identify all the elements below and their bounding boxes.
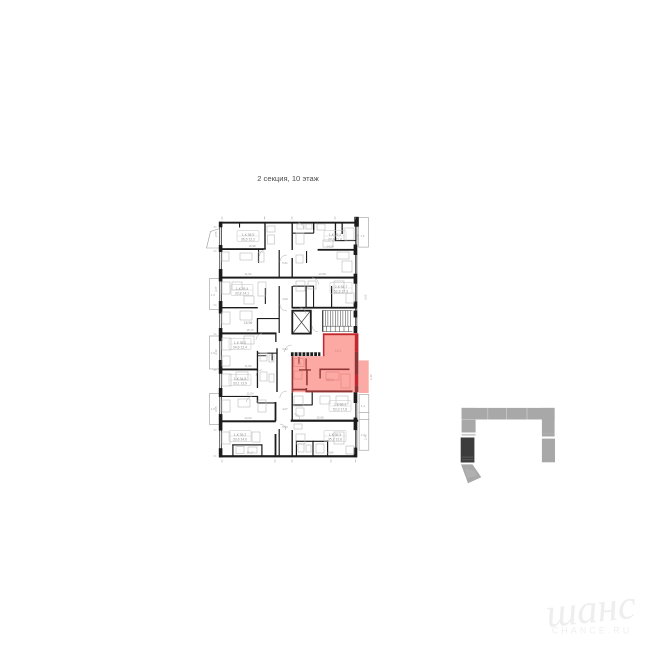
svg-text:2,43: 2,43 xyxy=(369,374,373,380)
svg-text:3,62: 3,62 xyxy=(364,294,368,300)
svg-text:3,9: 3,9 xyxy=(297,362,301,366)
svg-text:53,3 17,8: 53,3 17,8 xyxy=(333,408,347,412)
svg-text:14,94: 14,94 xyxy=(245,416,252,420)
svg-text:2-К 54,7: 2-К 54,7 xyxy=(335,285,348,289)
svg-text:11,62: 11,62 xyxy=(245,272,252,276)
svg-text:15,96: 15,96 xyxy=(244,321,253,325)
svg-text:52,9 17,3: 52,9 17,3 xyxy=(334,290,348,294)
svg-text:34,6 12,4: 34,6 12,4 xyxy=(233,346,247,350)
svg-text:1-К 35,2: 1-К 35,2 xyxy=(234,433,247,437)
svg-text:27,9 11,0: 27,9 11,0 xyxy=(328,238,342,242)
svg-text:11,80: 11,80 xyxy=(245,364,252,368)
svg-text:1,4: 1,4 xyxy=(361,404,365,408)
svg-text:1-К 36,2: 1-К 36,2 xyxy=(234,341,247,345)
svg-text:15,73: 15,73 xyxy=(247,328,254,332)
svg-text:1,5: 1,5 xyxy=(361,433,365,437)
svg-text:1-К 35,4: 1-К 35,4 xyxy=(236,287,249,291)
svg-text:12,04: 12,04 xyxy=(247,392,254,396)
svg-text:CHANCE.RU: CHANCE.RU xyxy=(552,626,633,636)
svg-text:1,5: 1,5 xyxy=(211,407,215,411)
svg-text:13,08: 13,08 xyxy=(319,272,326,276)
svg-text:1-К 38,9: 1-К 38,9 xyxy=(242,233,255,237)
svg-text:2-К 55,1: 2-К 55,1 xyxy=(334,403,347,407)
svg-text:1,5: 1,5 xyxy=(211,351,215,355)
svg-text:15,98: 15,98 xyxy=(249,244,256,248)
svg-text:35,2 12,6: 35,2 12,6 xyxy=(328,438,342,442)
svg-text:33,1 13,9: 33,1 13,9 xyxy=(233,382,247,386)
svg-text:4,09: 4,09 xyxy=(282,297,288,301)
svg-text:14,86: 14,86 xyxy=(327,451,334,455)
svg-text:14,17: 14,17 xyxy=(247,451,254,455)
svg-text:36,5 12,2: 36,5 12,2 xyxy=(241,238,255,242)
svg-text:16,9: 16,9 xyxy=(335,349,341,353)
svg-text:2,19: 2,19 xyxy=(356,234,360,240)
svg-text:2 секция, 10 этаж: 2 секция, 10 этаж xyxy=(257,174,319,183)
svg-text:1-К 36,9: 1-К 36,9 xyxy=(329,433,342,437)
svg-text:33,8 14,1: 33,8 14,1 xyxy=(235,292,249,296)
svg-text:1-К 34,8: 1-К 34,8 xyxy=(234,377,247,381)
svg-text:1,5: 1,5 xyxy=(361,234,365,238)
svg-text:38,91: 38,91 xyxy=(326,378,334,382)
svg-text:5,61: 5,61 xyxy=(282,261,288,265)
svg-text:33,6 14,0: 33,6 14,0 xyxy=(233,438,247,442)
svg-text:3,27: 3,27 xyxy=(214,286,218,292)
svg-text:2,55: 2,55 xyxy=(214,231,218,237)
svg-text:15,08: 15,08 xyxy=(317,416,324,420)
svg-text:14,20: 14,20 xyxy=(327,245,334,249)
svg-text:1-К 29,2: 1-К 29,2 xyxy=(329,233,342,237)
svg-text:4,07: 4,07 xyxy=(282,407,288,411)
svg-text:1,5: 1,5 xyxy=(211,293,215,297)
